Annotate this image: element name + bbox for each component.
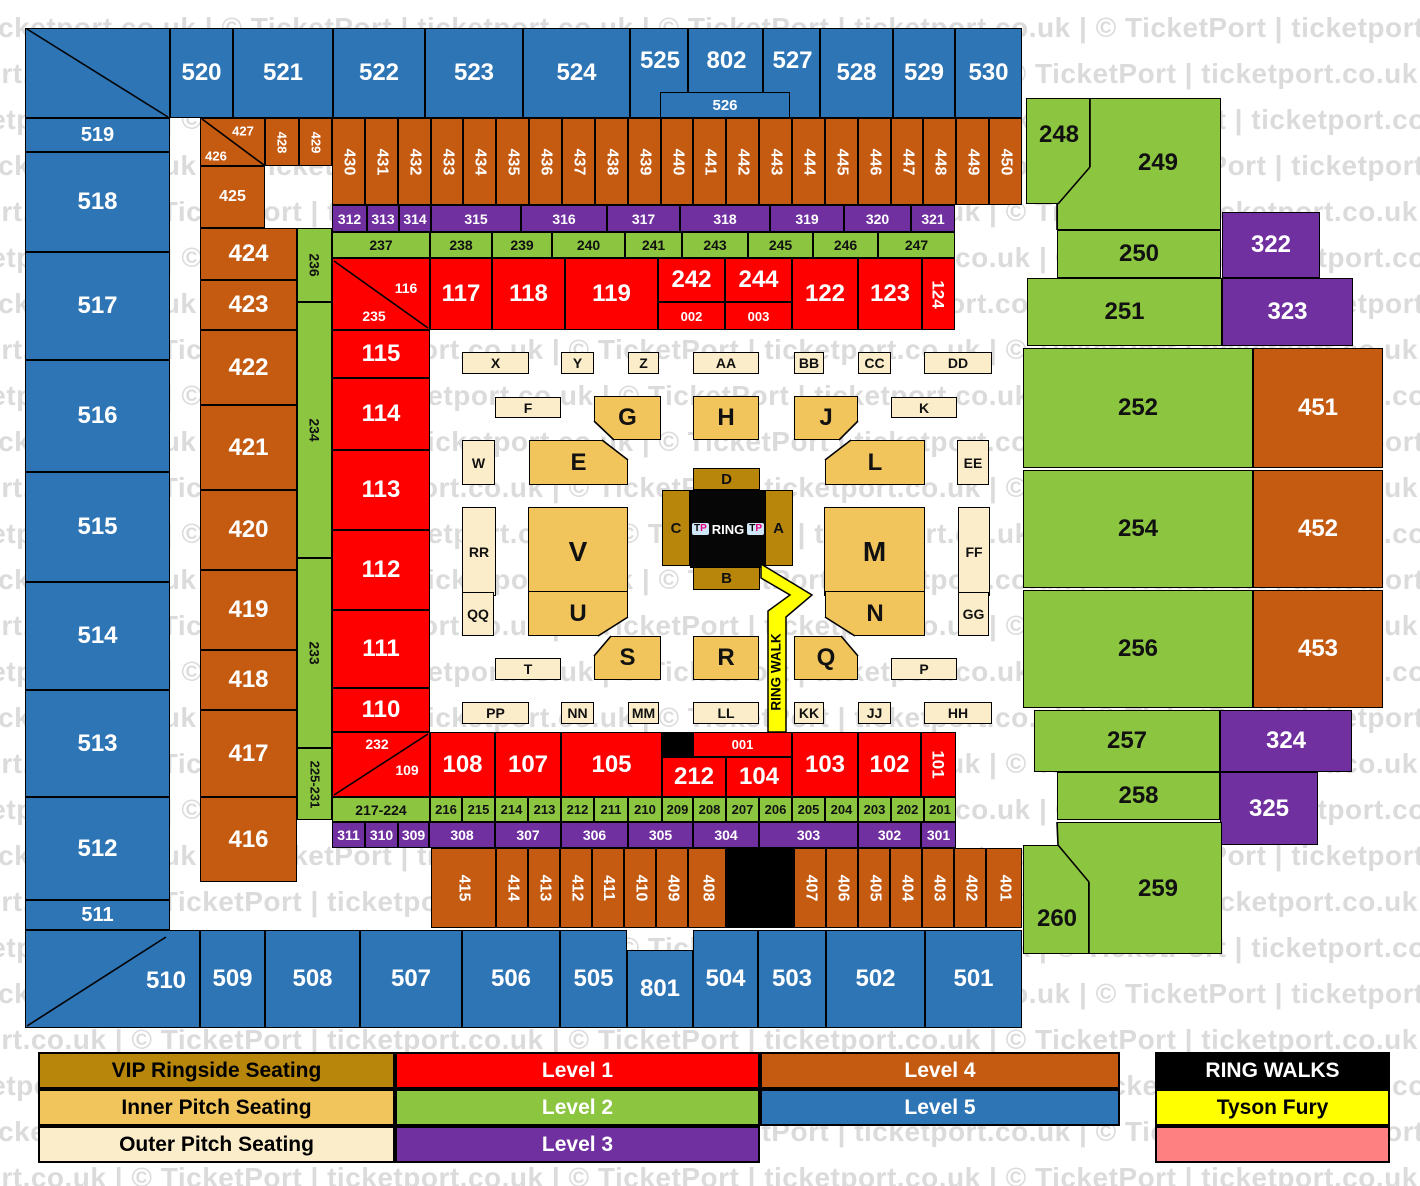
section-411[interactable]: 411 — [592, 848, 624, 928]
section-206[interactable]: 206 — [759, 797, 792, 822]
section-label: 101 — [930, 750, 947, 778]
section-316[interactable]: 316 — [521, 205, 607, 232]
section-507[interactable]: 507 — [360, 930, 462, 1028]
section-441[interactable]: 441 — [693, 118, 726, 205]
section-Y[interactable]: Y — [561, 352, 594, 374]
section-T[interactable]: T — [495, 658, 561, 680]
section-label: HH — [948, 706, 968, 720]
section-label: 316 — [552, 212, 575, 226]
section-451[interactable]: 451 — [1253, 348, 1383, 468]
section-258[interactable]: 258 — [1057, 772, 1220, 820]
section-501[interactable]: 501 — [925, 930, 1022, 1028]
section-BB[interactable]: BB — [794, 352, 824, 374]
section-508[interactable]: 508 — [265, 930, 360, 1028]
section-302[interactable]: 302 — [858, 822, 921, 848]
section-236[interactable]: 236 — [297, 228, 332, 302]
section-510[interactable]: 510 — [25, 930, 200, 1028]
section-R[interactable]: R — [693, 636, 759, 680]
section-517[interactable]: 517 — [25, 252, 170, 360]
section-215[interactable]: 215 — [462, 797, 495, 822]
section-318[interactable]: 318 — [680, 205, 770, 232]
section-label: 443 — [767, 148, 783, 175]
section-118[interactable]: 118 — [492, 258, 565, 330]
section-label: EE — [964, 456, 983, 470]
section-308[interactable]: 308 — [429, 822, 495, 848]
section-404[interactable]: 404 — [890, 848, 922, 928]
section-208[interactable]: 208 — [693, 797, 726, 822]
section-EE[interactable]: EE — [957, 440, 989, 485]
section-439[interactable]: 439 — [628, 118, 661, 205]
section-440[interactable]: 440 — [661, 118, 693, 205]
section-212[interactable]: 212 — [662, 757, 726, 797]
section-502[interactable]: 502 — [826, 930, 925, 1028]
section-314[interactable]: 314 — [399, 205, 431, 232]
section-label: 258 — [1118, 784, 1158, 808]
section-label: NN — [567, 706, 587, 720]
section-K[interactable]: K — [891, 397, 957, 418]
section-209[interactable]: 209 — [662, 797, 693, 822]
section-B[interactable]: B — [693, 566, 760, 590]
section-label: 259 — [1138, 877, 1178, 901]
section-black-b[interactable] — [726, 848, 794, 928]
legend-inner-pitch-seating: Inner Pitch Seating — [38, 1089, 395, 1126]
section-JJ[interactable]: JJ — [858, 702, 891, 724]
section-label: 103 — [805, 753, 845, 777]
section-label: 102 — [869, 753, 909, 777]
section-322[interactable]: 322 — [1222, 212, 1320, 278]
section-402[interactable]: 402 — [954, 848, 986, 928]
section-238[interactable]: 238 — [430, 232, 492, 258]
section-label: Q — [817, 646, 836, 670]
section-PP[interactable]: PP — [462, 702, 529, 724]
section-443[interactable]: 443 — [759, 118, 792, 205]
section-217-224[interactable]: 217-224 — [332, 797, 430, 822]
section-V[interactable]: V — [528, 507, 628, 596]
section-label: 321 — [921, 212, 944, 226]
section-M[interactable]: M — [824, 507, 925, 596]
section-119[interactable]: 119 — [565, 258, 658, 330]
section-449[interactable]: 449 — [956, 118, 989, 205]
section-437[interactable]: 437 — [562, 118, 595, 205]
section-black-a[interactable] — [662, 732, 693, 757]
section-label: 307 — [516, 828, 539, 842]
section-label: T — [524, 662, 533, 676]
section-KK[interactable]: KK — [794, 702, 824, 724]
section-label: 453 — [1298, 637, 1338, 661]
section-Q[interactable]: Q — [794, 636, 858, 680]
section-label: 442 — [734, 148, 750, 175]
section-234[interactable]: 234 — [297, 302, 332, 558]
section-label: 436 — [537, 148, 553, 175]
section-label: 117 — [442, 282, 481, 306]
section-label: 428 — [275, 131, 288, 153]
section-325[interactable]: 325 — [1220, 772, 1318, 845]
section-label: X — [491, 356, 500, 370]
tp-logo: TP — [692, 523, 709, 535]
section-317[interactable]: 317 — [607, 205, 680, 232]
section-label: 119 — [592, 282, 631, 306]
section-103[interactable]: 103 — [792, 732, 858, 797]
section-413[interactable]: 413 — [528, 848, 560, 928]
section-C[interactable]: C — [662, 490, 690, 566]
legend-level-1: Level 1 — [395, 1052, 760, 1089]
section-445[interactable]: 445 — [825, 118, 858, 205]
section-205[interactable]: 205 — [792, 797, 825, 822]
section-405[interactable]: 405 — [858, 848, 890, 928]
section-D[interactable]: D — [693, 468, 760, 490]
section-003[interactable]: 003 — [725, 302, 792, 330]
section-label: 418 — [228, 668, 268, 692]
section-label: 107 — [508, 753, 548, 777]
section-513[interactable]: 513 — [25, 690, 170, 797]
section-239[interactable]: 239 — [492, 232, 552, 258]
section-522[interactable]: 522 — [333, 28, 425, 118]
section-307[interactable]: 307 — [495, 822, 561, 848]
section-108[interactable]: 108 — [430, 732, 495, 797]
section-label: L — [868, 451, 883, 475]
section-409[interactable]: 409 — [656, 848, 688, 928]
section-420[interactable]: 420 — [200, 490, 297, 570]
section-303[interactable]: 303 — [759, 822, 858, 848]
section-FF[interactable]: FF — [958, 507, 990, 596]
section-311[interactable]: 311 — [332, 822, 365, 848]
section-408[interactable]: 408 — [688, 848, 726, 928]
section-310[interactable]: 310 — [365, 822, 398, 848]
section-label: 302 — [878, 828, 901, 842]
section-207[interactable]: 207 — [726, 797, 759, 822]
section-324[interactable]: 324 — [1220, 710, 1352, 772]
section-503[interactable]: 503 — [758, 930, 826, 1028]
section-202[interactable]: 202 — [891, 797, 924, 822]
section-452[interactable]: 452 — [1253, 470, 1383, 588]
section-254[interactable]: 254 — [1023, 470, 1253, 588]
section-label: N — [866, 602, 883, 626]
section-431[interactable]: 431 — [365, 118, 398, 205]
section-label: 513 — [77, 732, 117, 756]
section-245[interactable]: 245 — [748, 232, 813, 258]
section-002[interactable]: 002 — [658, 302, 725, 330]
section-432[interactable]: 432 — [398, 118, 431, 205]
section-101[interactable]: 101 — [921, 732, 956, 797]
section-251[interactable]: 251 — [1027, 278, 1222, 346]
legend-outer-pitch-seating: Outer Pitch Seating — [38, 1126, 395, 1163]
section-label: 123 — [870, 282, 910, 306]
section-label: 239 — [510, 238, 533, 252]
section-434[interactable]: 434 — [463, 118, 496, 205]
section-corner-nw[interactable] — [25, 28, 170, 118]
section-105[interactable]: 105 — [561, 732, 662, 797]
section-117[interactable]: 117 — [430, 258, 492, 330]
section-label: 113 — [362, 478, 401, 502]
section-212[interactable]: 212 — [561, 797, 594, 822]
section-514[interactable]: 514 — [25, 582, 170, 690]
section-519[interactable]: 519 — [25, 118, 170, 152]
section-label: 433 — [439, 148, 455, 175]
section-110[interactable]: 110 — [332, 688, 430, 732]
section-401[interactable]: 401 — [986, 848, 1022, 928]
section-label: 301 — [927, 828, 950, 842]
section-label-235: 235 — [362, 308, 385, 324]
section-label: 312 — [338, 212, 361, 226]
section-319[interactable]: 319 — [770, 205, 844, 232]
section-label: D — [721, 472, 732, 487]
section-label: 311 — [337, 828, 360, 842]
section-247[interactable]: 247 — [878, 232, 955, 258]
section-label: 431 — [373, 148, 389, 175]
section-label: 323 — [1267, 300, 1307, 324]
section-438[interactable]: 438 — [595, 118, 628, 205]
section-label: M — [863, 538, 886, 566]
section-240[interactable]: 240 — [552, 232, 625, 258]
section-246[interactable]: 246 — [813, 232, 878, 258]
section-801[interactable]: 801 — [627, 950, 693, 1028]
section-252[interactable]: 252 — [1023, 348, 1253, 468]
section-label: 257 — [1107, 729, 1147, 753]
section-201[interactable]: 201 — [924, 797, 956, 822]
section-520[interactable]: 520 — [170, 28, 233, 118]
section-448[interactable]: 448 — [923, 118, 956, 205]
section-122[interactable]: 122 — [792, 258, 858, 330]
section-label: E — [570, 451, 586, 475]
section-429[interactable]: 429 — [299, 118, 332, 166]
section-label: G — [618, 406, 637, 430]
section-424[interactable]: 424 — [200, 228, 297, 280]
section-label: 240 — [577, 238, 600, 252]
section-label: 236 — [307, 253, 321, 276]
section-label-427: 427 — [232, 124, 254, 139]
section-label: 201 — [929, 803, 951, 816]
section-114[interactable]: 114 — [332, 378, 430, 450]
section-label: 507 — [391, 967, 431, 991]
section-515[interactable]: 515 — [25, 472, 170, 582]
section-211[interactable]: 211 — [594, 797, 628, 822]
section-label: 438 — [603, 148, 619, 175]
section-X[interactable]: X — [462, 352, 529, 374]
section-label: 439 — [636, 148, 652, 175]
section-label: 505 — [573, 967, 613, 991]
section-312[interactable]: 312 — [332, 205, 367, 232]
section-414[interactable]: 414 — [496, 848, 528, 928]
section-446[interactable]: 446 — [858, 118, 891, 205]
section-509[interactable]: 509 — [200, 930, 265, 1028]
section-W[interactable]: W — [462, 440, 495, 485]
section-label: 115 — [362, 342, 401, 366]
section-518[interactable]: 518 — [25, 152, 170, 252]
section-524[interactable]: 524 — [523, 28, 630, 118]
section-233[interactable]: 233 — [297, 558, 332, 748]
section-102[interactable]: 102 — [858, 732, 921, 797]
section-204[interactable]: 204 — [825, 797, 858, 822]
section-321[interactable]: 321 — [911, 205, 955, 232]
section-label-109: 109 — [395, 762, 418, 778]
section-526[interactable]: 526 — [660, 92, 790, 118]
section-label: H — [717, 406, 734, 430]
section-HH[interactable]: HH — [924, 702, 992, 724]
section-H[interactable]: H — [693, 396, 759, 440]
section-label: 415 — [455, 875, 471, 902]
section-label: 245 — [769, 238, 792, 252]
section-444[interactable]: 444 — [792, 118, 825, 205]
section-521[interactable]: 521 — [233, 28, 333, 118]
section-label: C — [671, 521, 682, 536]
section-403[interactable]: 403 — [922, 848, 954, 928]
section-447[interactable]: 447 — [891, 118, 923, 205]
section-504[interactable]: 504 — [693, 930, 758, 1028]
section-label: 440 — [669, 148, 685, 175]
section-F[interactable]: F — [495, 397, 561, 418]
section-label: 310 — [370, 828, 393, 842]
section-QQ[interactable]: QQ — [462, 592, 494, 636]
section-label: W — [472, 456, 485, 470]
section-256[interactable]: 256 — [1023, 590, 1253, 708]
legend-empty-3-2 — [1155, 1126, 1390, 1163]
section-111[interactable]: 111 — [332, 610, 430, 688]
section-516[interactable]: 516 — [25, 360, 170, 472]
section-418[interactable]: 418 — [200, 650, 297, 710]
section-511[interactable]: 511 — [25, 900, 170, 930]
section-430[interactable]: 430 — [332, 118, 365, 205]
section-433[interactable]: 433 — [431, 118, 463, 205]
section-label: 317 — [632, 212, 655, 226]
section-NN[interactable]: NN — [561, 702, 594, 724]
section-301[interactable]: 301 — [921, 822, 956, 848]
section-Z[interactable]: Z — [628, 352, 659, 374]
section-label: AA — [716, 356, 736, 370]
section-label: 003 — [748, 310, 770, 323]
section-216[interactable]: 216 — [430, 797, 462, 822]
section-406[interactable]: 406 — [826, 848, 858, 928]
section-419[interactable]: 419 — [200, 570, 297, 650]
section-214[interactable]: 214 — [495, 797, 528, 822]
section-505[interactable]: 505 — [560, 930, 627, 1028]
section-label: 425 — [219, 189, 246, 205]
section-001[interactable]: 001 — [693, 732, 792, 757]
section-A[interactable]: A — [764, 490, 793, 566]
section-313[interactable]: 313 — [367, 205, 399, 232]
section-label: 528 — [836, 61, 876, 85]
section-label: 518 — [77, 190, 117, 214]
section-LL[interactable]: LL — [693, 702, 759, 724]
section-453[interactable]: 453 — [1253, 590, 1383, 708]
section-label: 417 — [228, 742, 268, 766]
section-237[interactable]: 237 — [332, 232, 430, 258]
section-529[interactable]: 529 — [893, 28, 955, 118]
section-512[interactable]: 512 — [25, 797, 170, 900]
section-315[interactable]: 315 — [431, 205, 521, 232]
section-label: MM — [632, 706, 655, 720]
section-528[interactable]: 528 — [820, 28, 893, 118]
section-label: 422 — [228, 356, 268, 380]
section-GG[interactable]: GG — [958, 592, 989, 636]
section-label: 305 — [649, 828, 672, 842]
section-244[interactable]: 244 — [725, 258, 792, 302]
section-250[interactable]: 250 — [1057, 230, 1221, 278]
section-203[interactable]: 203 — [858, 797, 891, 822]
section-RR[interactable]: RR — [462, 507, 496, 596]
section-530[interactable]: 530 — [955, 28, 1022, 118]
section-label: 251 — [1104, 300, 1144, 324]
watermark-row: ticketport.co.uk | © TicketPort | ticket… — [0, 1162, 1420, 1186]
section-label: 527 — [772, 49, 812, 73]
section-107[interactable]: 107 — [495, 732, 561, 797]
section-AA[interactable]: AA — [693, 352, 759, 374]
section-label: 204 — [831, 803, 853, 816]
section-MM[interactable]: MM — [628, 702, 659, 724]
section-label: 411 — [600, 875, 616, 901]
section-113[interactable]: 113 — [332, 450, 430, 530]
section-label: 215 — [468, 803, 490, 816]
section-412[interactable]: 412 — [560, 848, 592, 928]
section-442[interactable]: 442 — [726, 118, 759, 205]
section-label: 216 — [435, 803, 457, 816]
section-423[interactable]: 423 — [200, 280, 297, 330]
section-506[interactable]: 506 — [462, 930, 560, 1028]
section-label: 802 — [706, 49, 746, 73]
section-416[interactable]: 416 — [200, 797, 297, 882]
section-417[interactable]: 417 — [200, 710, 297, 797]
section-213[interactable]: 213 — [528, 797, 561, 822]
section-label: 112 — [362, 558, 401, 582]
section-523[interactable]: 523 — [425, 28, 523, 118]
section-label: 256 — [1118, 637, 1158, 661]
section-210[interactable]: 210 — [628, 797, 662, 822]
section-225-231[interactable]: 225-231 — [297, 748, 332, 820]
section-label: 244 — [738, 268, 778, 292]
section-CC[interactable]: CC — [858, 352, 891, 374]
section-label: 248 — [1039, 123, 1079, 147]
section-label: CC — [864, 356, 884, 370]
section-label: 401 — [996, 875, 1012, 902]
section-241[interactable]: 241 — [625, 232, 682, 258]
section-104[interactable]: 104 — [726, 757, 792, 797]
section-label: 325 — [1249, 797, 1289, 821]
section-label: 515 — [77, 515, 117, 539]
section-425[interactable]: 425 — [200, 166, 265, 228]
section-112[interactable]: 112 — [332, 530, 430, 610]
section-DD[interactable]: DD — [924, 352, 992, 374]
section-407[interactable]: 407 — [794, 848, 826, 928]
section-124[interactable]: 124 — [922, 258, 955, 330]
section-P[interactable]: P — [891, 658, 957, 680]
section-label: JJ — [867, 706, 883, 720]
section-309[interactable]: 309 — [398, 822, 429, 848]
section-243[interactable]: 243 — [682, 232, 748, 258]
section-415[interactable]: 415 — [431, 848, 496, 928]
section-label: KK — [799, 706, 819, 720]
section-S[interactable]: S — [594, 636, 661, 680]
section-436[interactable]: 436 — [529, 118, 562, 205]
legend-level-3: Level 3 — [395, 1126, 760, 1163]
section-422[interactable]: 422 — [200, 330, 297, 405]
section-305[interactable]: 305 — [628, 822, 693, 848]
section-306[interactable]: 306 — [561, 822, 628, 848]
section-410[interactable]: 410 — [624, 848, 656, 928]
section-123[interactable]: 123 — [858, 258, 922, 330]
section-label: 511 — [81, 905, 113, 925]
section-450[interactable]: 450 — [989, 118, 1022, 205]
section-320[interactable]: 320 — [844, 205, 911, 232]
section-421[interactable]: 421 — [200, 405, 297, 490]
section-115[interactable]: 115 — [332, 330, 430, 378]
section-label: DD — [948, 356, 968, 370]
section-242[interactable]: 242 — [658, 258, 725, 302]
section-323[interactable]: 323 — [1222, 278, 1353, 346]
section-304[interactable]: 304 — [693, 822, 759, 848]
section-428[interactable]: 428 — [265, 118, 299, 166]
section-257[interactable]: 257 — [1034, 710, 1220, 772]
section-label-116: 116 — [395, 280, 418, 296]
section-435[interactable]: 435 — [496, 118, 529, 205]
